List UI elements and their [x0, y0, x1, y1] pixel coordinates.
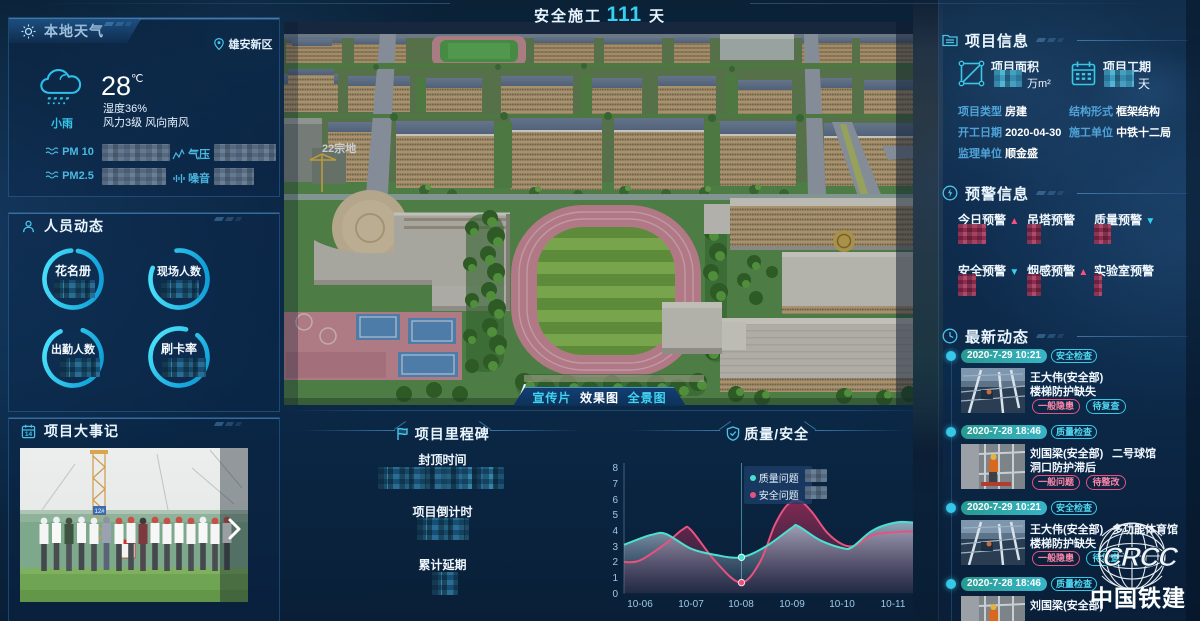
- svg-text:CRCC: CRCC: [1100, 541, 1183, 572]
- svg-text:6: 6: [612, 495, 618, 506]
- svg-text:刷卡率: 刷卡率: [161, 341, 197, 356]
- svg-text:14: 14: [25, 431, 33, 438]
- svg-text:花名册: 花名册: [55, 263, 91, 278]
- svg-text:10-06: 10-06: [627, 599, 653, 610]
- svg-text:5: 5: [612, 510, 618, 521]
- svg-text:2: 2: [612, 557, 618, 568]
- svg-text:8: 8: [612, 463, 618, 474]
- svg-text:7: 7: [612, 479, 618, 490]
- svg-text:现场人数: 现场人数: [157, 264, 202, 278]
- svg-text:0: 0: [612, 589, 618, 600]
- svg-text:10-07: 10-07: [678, 599, 704, 610]
- svg-text:4: 4: [612, 526, 618, 537]
- svg-text:1: 1: [612, 573, 618, 584]
- svg-text:10-11: 10-11: [881, 599, 906, 610]
- svg-text:12#: 12#: [94, 509, 105, 515]
- svg-text:10-10: 10-10: [829, 599, 855, 610]
- svg-text:出勤人数: 出勤人数: [51, 342, 96, 356]
- svg-text:10-08: 10-08: [728, 599, 754, 610]
- svg-text:3: 3: [612, 542, 618, 553]
- svg-text:10-09: 10-09: [779, 599, 805, 610]
